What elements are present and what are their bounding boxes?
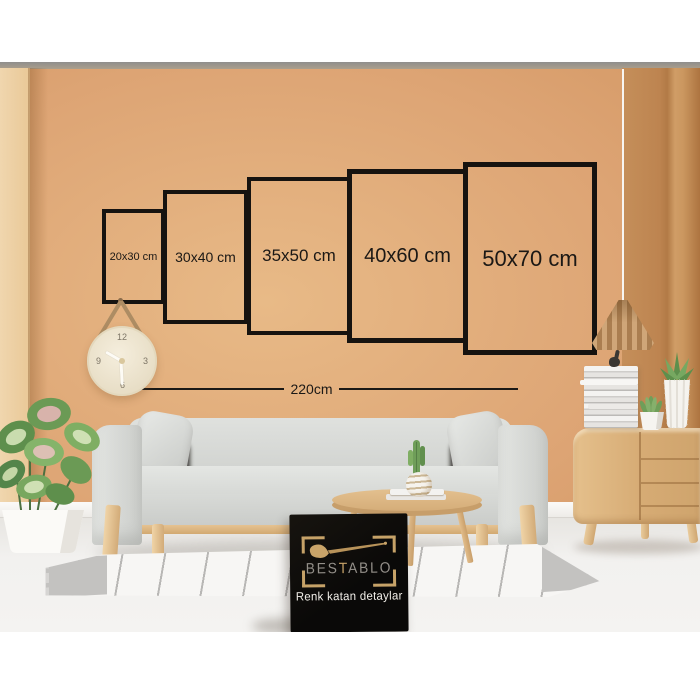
brand-title-part: ABLO [348, 560, 392, 577]
brand-title: BESTABLO [295, 559, 404, 577]
sideboard [573, 428, 700, 524]
clock-minute-hand [120, 361, 124, 385]
brand-title-gold-letter: T [339, 560, 348, 577]
frame-size-label: 50x70 cm [482, 246, 577, 272]
sideboard-drawer-line [641, 482, 699, 484]
room-photo: 20x30 cm 30x40 cm 35x50 cm 40x60 cm 50x7… [0, 62, 700, 632]
sideboard-leg [641, 522, 649, 539]
potted-plant-icon [0, 382, 106, 554]
measurement-label: 220cm [284, 381, 338, 397]
book [580, 380, 638, 385]
brand-tagline: Renk katan detaylar [293, 588, 405, 603]
bird-figurine-icon [609, 357, 620, 367]
sofa-leg [152, 524, 164, 556]
clock-number-12: 12 [117, 332, 127, 342]
clock-center-pin [119, 358, 125, 364]
size-frame-30x40: 30x40 cm [163, 190, 248, 324]
brand-title-part: BES [306, 560, 339, 577]
clock-number-3: 3 [143, 356, 148, 366]
measurement-line-right [339, 388, 518, 390]
frame-size-label: 30x40 cm [175, 249, 236, 265]
size-frame-40x60: 40x60 cm [347, 169, 468, 343]
striped-vase [406, 472, 432, 497]
book [588, 404, 638, 409]
paintbrush-icon [307, 540, 391, 561]
product-mockup-image: 20x30 cm 30x40 cm 35x50 cm 40x60 cm 50x7… [0, 0, 700, 700]
frame-size-label: 35x50 cm [262, 246, 336, 266]
sideboard-drawer-line [641, 458, 699, 460]
stacked-books [584, 366, 638, 428]
size-frame-35x50: 35x50 cm [247, 177, 351, 335]
width-measurement: 220cm [105, 381, 518, 397]
lamp-cord [622, 69, 624, 301]
frame-size-label: 40x60 cm [364, 245, 451, 268]
clock-number-9: 9 [96, 356, 101, 366]
size-frame-50x70: 50x70 cm [463, 162, 597, 355]
brand-card: BESTABLO Renk katan detaylar [289, 513, 408, 632]
sideboard-drawer-line [641, 505, 699, 507]
size-frame-20x30: 20x30 cm [102, 209, 165, 304]
ceiling-shadow [0, 62, 700, 69]
frame-size-label: 20x30 cm [110, 251, 158, 263]
aloe-vase-icon [658, 350, 696, 430]
